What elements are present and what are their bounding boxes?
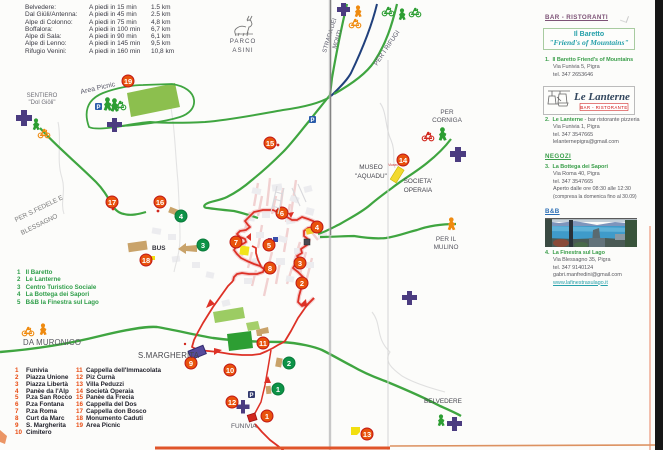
svg-text:11: 11	[259, 339, 267, 348]
svg-text:1: 1	[276, 385, 280, 394]
svg-text:3: 3	[298, 259, 302, 268]
svg-text:2: 2	[300, 279, 304, 288]
svg-text:19: 19	[124, 77, 132, 86]
svg-text:BAR - RISTORANTE: BAR - RISTORANTE	[580, 105, 627, 110]
svg-text:Le Lanterne: Le Lanterne	[573, 91, 630, 103]
svg-text:12: 12	[228, 398, 236, 407]
svg-text:2: 2	[287, 359, 291, 368]
svg-text:15: 15	[266, 139, 274, 148]
svg-text:13: 13	[363, 430, 371, 439]
svg-text:7: 7	[234, 238, 238, 247]
svg-text:18: 18	[142, 256, 150, 265]
svg-text:1: 1	[265, 412, 269, 421]
svg-text:8: 8	[268, 264, 272, 273]
svg-text:14: 14	[399, 156, 408, 165]
svg-text:P: P	[310, 118, 314, 124]
svg-text:5: 5	[267, 241, 271, 250]
svg-text:17: 17	[108, 198, 116, 207]
svg-text:10: 10	[226, 366, 234, 375]
svg-text:16: 16	[156, 198, 164, 207]
svg-text:6: 6	[280, 209, 284, 218]
svg-text:P: P	[96, 105, 100, 111]
svg-text:9: 9	[189, 359, 193, 368]
svg-text:3: 3	[201, 241, 205, 250]
svg-text:P: P	[249, 393, 253, 399]
